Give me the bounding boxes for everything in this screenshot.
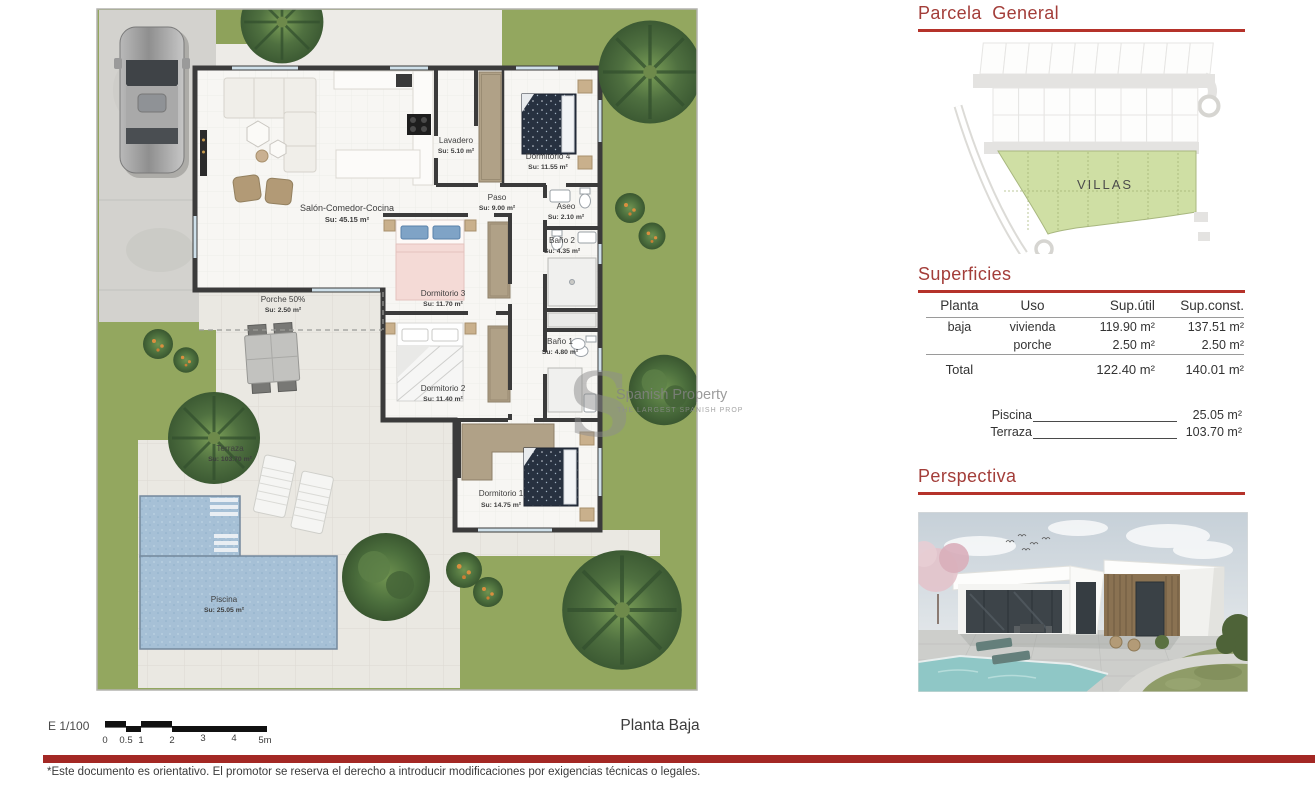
svg-text:1: 1	[138, 735, 143, 746]
bed-dormitorio-3	[384, 220, 476, 300]
extra-piscina: Piscina 25.05 m²	[980, 408, 1242, 422]
svg-text:0.5: 0.5	[119, 735, 132, 746]
svg-text:Baño 1: Baño 1	[547, 337, 573, 346]
villas-label: VILLAS	[1077, 177, 1133, 192]
svg-text:Dormitorio 1: Dormitorio 1	[479, 489, 524, 498]
col-header-planta: Planta	[926, 296, 993, 318]
scale-bar: E 1/100 0 0.5 1 2 3 4 5m	[48, 719, 272, 746]
svg-text:5m: 5m	[258, 735, 271, 746]
svg-text:THE LARGEST SPANISH PROP: THE LARGEST SPANISH PROP	[617, 407, 743, 414]
extras-block: Piscina 25.05 m² Terraza 103.70 m²	[980, 408, 1242, 442]
cooktop	[407, 114, 431, 135]
svg-text:Terraza: Terraza	[216, 444, 244, 453]
svg-text:0: 0	[102, 735, 107, 746]
parcel-row-top	[980, 43, 1213, 74]
svg-text:Su: 4.35 m²: Su: 4.35 m²	[544, 248, 581, 255]
sidebar: Parcela General	[918, 0, 1248, 802]
svg-text:Piscina: Piscina	[211, 595, 238, 604]
perspective-render	[918, 512, 1248, 692]
table-row: porche 2.50 m² 2.50 m²	[926, 336, 1244, 355]
svg-text:Su: 11.70 m²: Su: 11.70 m²	[423, 301, 463, 308]
svg-text:Lavadero: Lavadero	[439, 136, 474, 145]
road-band-1	[973, 74, 1215, 88]
svg-text:Salón-Comedor-Cocina: Salón-Comedor-Cocina	[300, 203, 394, 213]
svg-text:Baño 2: Baño 2	[549, 236, 575, 245]
svg-text:S: S	[568, 353, 632, 457]
svg-text:Su: 5.10 m²: Su: 5.10 m²	[438, 148, 475, 155]
roundabout	[1200, 97, 1219, 116]
parcela-site-plan: VILLAS	[918, 36, 1248, 254]
svg-text:Spanish Property: Spanish Property	[616, 387, 728, 403]
svg-text:Aseo: Aseo	[557, 202, 576, 211]
table-row: baja vivienda 119.90 m² 137.51 m²	[926, 318, 1244, 336]
svg-text:Su: 2.10 m²: Su: 2.10 m²	[548, 214, 585, 221]
svg-text:2: 2	[169, 735, 174, 746]
svg-text:Su: 11.55 m²: Su: 11.55 m²	[528, 164, 568, 171]
col-header-uso: Uso	[993, 296, 1073, 318]
svg-text:Dormitorio 4: Dormitorio 4	[526, 152, 571, 161]
footer-disclaimer: *Este documento es orientativo. El promo…	[47, 766, 700, 778]
footer-red-bar	[43, 755, 1315, 763]
svg-text:Porche 50%: Porche 50%	[261, 295, 306, 304]
perspectiva-heading: Perspectiva	[918, 466, 1245, 495]
table-total-row: Total 122.40 m² 140.01 m²	[926, 355, 1244, 379]
svg-text:Dormitorio 3: Dormitorio 3	[421, 289, 466, 298]
plan-title: Planta Baja	[620, 717, 700, 734]
extra-terraza: Terraza 103.70 m²	[980, 425, 1242, 439]
svg-text:Su: 14.75 m²: Su: 14.75 m²	[481, 502, 522, 509]
svg-text:3: 3	[200, 733, 205, 744]
svg-text:Su: 103.70 m²: Su: 103.70 m²	[208, 456, 253, 463]
kitchen-appliance	[396, 74, 412, 87]
parcela-general-heading: Parcela General	[918, 3, 1245, 32]
roundabout-small	[1036, 241, 1052, 254]
svg-text:Su: 11.40 m²: Su: 11.40 m²	[423, 396, 463, 403]
parcel-band-middle	[993, 88, 1198, 142]
scale-label: E 1/100	[48, 719, 90, 733]
superficies-heading: Superficies	[918, 264, 1245, 293]
svg-text:Su: 9.00 m²: Su: 9.00 m²	[479, 205, 516, 212]
svg-text:Su: 45.15 m²: Su: 45.15 m²	[325, 215, 370, 224]
svg-text:Su: 2.50 m²: Su: 2.50 m²	[265, 307, 302, 314]
col-header-util: Sup.útil	[1072, 296, 1155, 318]
svg-text:Su: 25.05 m²: Su: 25.05 m²	[204, 607, 245, 614]
car	[114, 27, 190, 178]
floor-plan: Salón-Comedor-Cocina Su: 45.15 m² Lavade…	[0, 0, 760, 802]
col-header-const: Sup.const.	[1155, 296, 1244, 318]
svg-text:Paso: Paso	[488, 193, 507, 202]
svg-text:Dormitorio 2: Dormitorio 2	[421, 384, 466, 393]
svg-text:4: 4	[231, 733, 236, 744]
superficies-table: Planta Uso Sup.útil Sup.const. baja vivi…	[926, 296, 1244, 379]
